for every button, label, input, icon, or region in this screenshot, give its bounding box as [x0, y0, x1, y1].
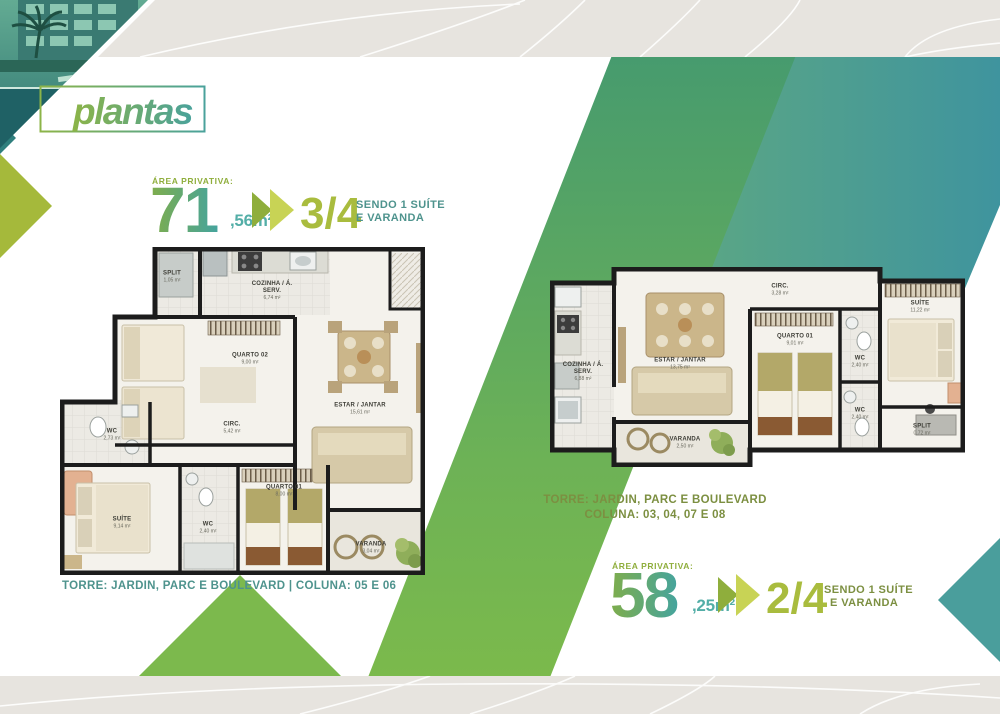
room-label: QUARTO 029,00 m² — [232, 352, 268, 365]
double-chevron-icon — [250, 188, 298, 236]
floor-plan-left: SPLIT1,05 m² COZINHA / Á. SERV.6,74 m² Q… — [60, 247, 425, 575]
room-label: WC2,73 m² — [104, 428, 121, 441]
svg-text:3/4: 3/4 — [300, 189, 362, 236]
room-label: VARANDA2,50 m² — [670, 436, 701, 449]
stats-right: ÁREA PRIVATIVA: 58 ,25m² 2/4 SENDO 1 SUÍ… — [610, 559, 950, 621]
double-chevron-icon — [716, 573, 764, 621]
title-block: plantas — [0, 60, 260, 150]
room-label: WC2,40 m² — [200, 521, 217, 534]
svg-text:58: 58 — [610, 559, 678, 621]
stats-left: ÁREA PRIVATIVA: 71 ,56m² 3/4 SENDO 1 SUÍ… — [150, 174, 470, 236]
room-label: COZINHA / Á. SERV.6,74 m² — [251, 281, 293, 301]
room-label: QUARTO 019,01 m² — [777, 333, 813, 346]
room-label: SPLIT0,72 m² — [913, 423, 931, 436]
svg-text:71: 71 — [150, 174, 218, 236]
top-contour-lines — [0, 0, 1000, 57]
brochure-page: plantas ÁREA PRIVATIVA: 71 ,56m² 3/4 SEN… — [0, 0, 1000, 714]
room-label: ESTAR / JANTAR15,61 m² — [334, 402, 386, 415]
page-title: plantas — [72, 91, 193, 132]
ratio-caption-right-1: SENDO 1 SUÍTE — [824, 584, 913, 597]
room-label: ESTAR / JANTAR13,75 m² — [654, 357, 706, 370]
room-label: COZINHA / Á. SERV.6,88 m² — [562, 362, 604, 382]
bottom-contour-lines — [0, 676, 1000, 714]
caption-right: TORRE: JARDIN, PARC E BOULEVARD COLUNA: … — [525, 493, 785, 523]
room-label: SUÍTE9,14 m² — [113, 516, 132, 529]
floor-plan-right: COZINHA / Á. SERV.6,88 m² CIRC.3,28 m² E… — [550, 267, 965, 467]
svg-text:2/4: 2/4 — [766, 574, 828, 621]
ratio-caption-left-1: SENDO 1 SUÍTE — [356, 199, 445, 212]
room-label: VARANDA3,04 m² — [356, 541, 387, 554]
top-contour-band — [0, 0, 1000, 57]
kitchen-appliances — [555, 287, 581, 423]
room-label: CIRC.5,42 m² — [223, 421, 240, 434]
room-label: SUÍTE11,22 m² — [910, 300, 929, 313]
room-label: SPLIT1,05 m² — [163, 270, 181, 283]
caption-right-line2: COLUNA: 03, 04, 07 E 08 — [525, 508, 785, 523]
caption-left: TORRE: JARDIN, PARC E BOULEVARD | COLUNA… — [62, 580, 396, 592]
left-olive-diamond — [0, 154, 52, 258]
room-label: CIRC.3,28 m² — [771, 283, 788, 296]
ratio-caption-right-2: E VARANDA — [830, 597, 898, 610]
caption-right-line1: TORRE: JARDIN, PARC E BOULEVARD — [525, 493, 785, 508]
room-label: WC2,40 m² — [852, 407, 869, 420]
room-label: WC2,40 m² — [852, 355, 869, 368]
room-label: QUARTO 018,00 m² — [266, 484, 302, 497]
bottom-contour-band — [0, 676, 1000, 714]
ratio-caption-left-2: E VARANDA — [356, 212, 424, 225]
floor-plan-right-drawing — [550, 267, 965, 467]
